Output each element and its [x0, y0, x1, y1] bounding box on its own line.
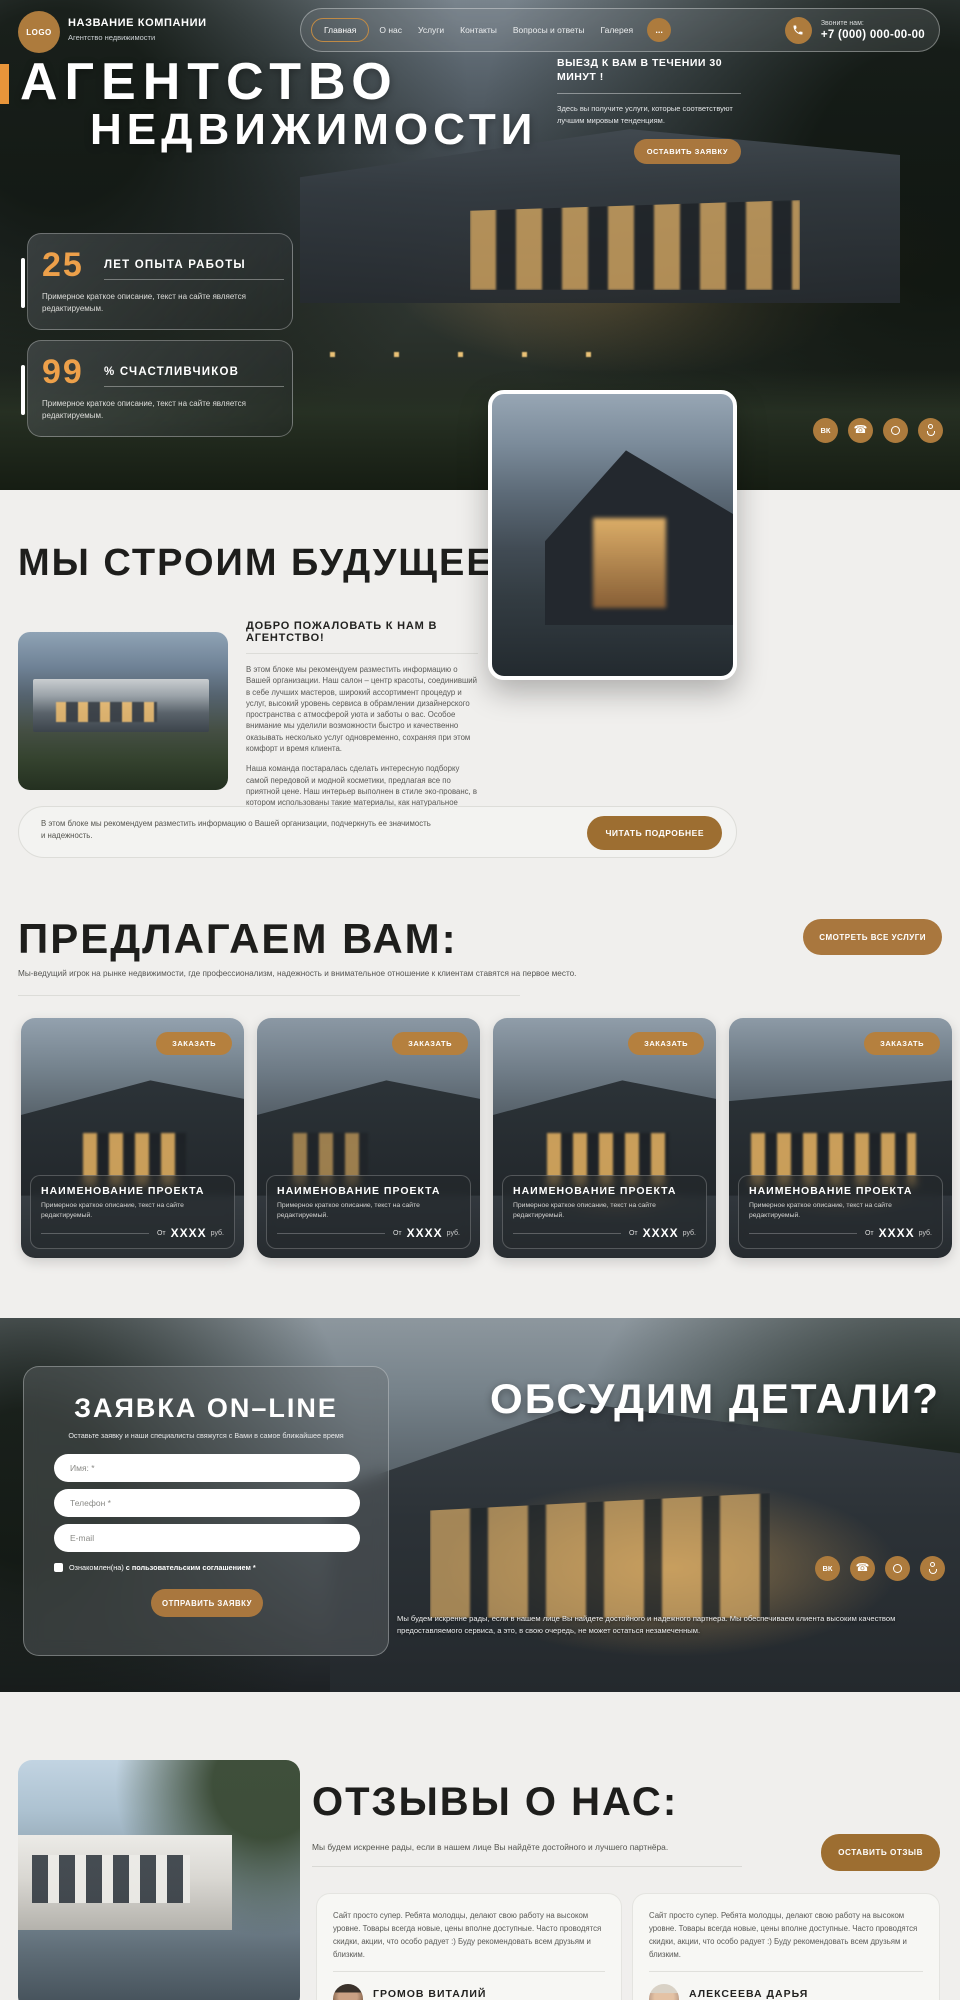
nav-item-about[interactable]: О нас	[371, 19, 410, 41]
about-section: МЫ СТРОИМ БУДУЩЕЕ ДОБРО ПОЖАЛОВАТЬ К НАМ…	[0, 490, 960, 905]
project-text: Примерное краткое описание, текст на сай…	[277, 1201, 427, 1221]
vk-icon[interactable]: ВК	[815, 1556, 840, 1581]
phone-icon[interactable]	[785, 17, 812, 44]
social-links: ВК ☎	[815, 1556, 945, 1581]
stat-label: ЛЕТ ОПЫТА РАБОТЫ	[104, 259, 246, 271]
project-text: Примерное краткое описание, текст на сай…	[749, 1201, 899, 1221]
messenger-icon[interactable]	[885, 1556, 910, 1581]
project-price-row: От XXXX руб.	[277, 1226, 460, 1240]
stat-label: % СЧАСТЛИВЧИКОВ	[104, 366, 239, 378]
project-price-row: От XXXX руб.	[41, 1226, 224, 1240]
price-value: XXXX	[171, 1226, 207, 1240]
project-title: НАИМЕНОВАНИЕ ПРОЕКТА	[41, 1185, 224, 1197]
about-heading: МЫ СТРОИМ БУДУЩЕЕ	[18, 542, 494, 585]
reviewer-avatar	[649, 1984, 679, 2000]
main-nav: Главная О нас Услуги Контакты Вопросы и …	[300, 8, 940, 52]
stat-value: 25	[42, 246, 84, 285]
review-card: Сайт просто супер. Ребята молодцы, делаю…	[632, 1893, 940, 2000]
name-field[interactable]	[54, 1454, 360, 1482]
reviews-subtitle: Мы будем искренне рады, если в нашем лиц…	[312, 1842, 668, 1852]
stat-card-experience: 25 ЛЕТ ОПЫТА РАБОТЫ Примерное краткое оп…	[27, 233, 293, 330]
company-name: НАЗВАНИЕ КОМПАНИИ	[68, 17, 207, 29]
phone-block: Звоните нам: +7 (000) 000-00-00	[785, 17, 925, 44]
services-heading: ПРЕДЛАГАЕМ ВАМ:	[18, 915, 458, 963]
messenger-icon[interactable]	[883, 418, 908, 443]
services-subtitle: Мы-ведущий игрок на рынке недвижимости, …	[18, 969, 598, 978]
nav-item-services[interactable]: Услуги	[410, 19, 452, 41]
price-prefix: От	[865, 1230, 874, 1237]
agreement-link[interactable]: с пользовательским соглашением *	[126, 1563, 256, 1572]
price-value: XXXX	[407, 1226, 443, 1240]
reviewer-avatar	[333, 1984, 363, 2000]
reviewer-name: АЛЕКСЕЕВА ДАРЬЯ	[689, 1988, 808, 2000]
phone-field[interactable]	[54, 1489, 360, 1517]
whatsapp-icon[interactable]: ☎	[848, 418, 873, 443]
hero-photo-windows	[470, 200, 800, 290]
agreement-row: Ознакомлен(на) с пользовательским соглаш…	[54, 1563, 256, 1572]
project-card: ЗАКАЗАТЬ НАИМЕНОВАНИЕ ПРОЕКТА Примерное …	[257, 1018, 480, 1258]
nav-item-contacts[interactable]: Контакты	[452, 19, 505, 41]
stat-divider	[104, 279, 284, 280]
review-divider	[333, 1971, 605, 1972]
stat-value: 99	[42, 353, 84, 392]
hero-section: LOGO НАЗВАНИЕ КОМПАНИИ Агентство недвижи…	[0, 0, 960, 490]
project-text: Примерное краткое описание, текст на сай…	[513, 1201, 663, 1221]
price-value: XXXX	[643, 1226, 679, 1240]
submit-request-button[interactable]: ОТПРАВИТЬ ЗАЯВКУ	[151, 1589, 263, 1617]
review-text: Сайт просто супер. Ребята молодцы, делаю…	[649, 1910, 923, 1961]
hero-title-line2: НЕДВИЖИМОСТИ	[90, 108, 537, 152]
hero-photo-pool-lights	[330, 352, 650, 357]
reviews-photo-house	[18, 1760, 300, 2000]
services-section: ПРЕДЛАГАЕМ ВАМ: СМОТРЕТЬ ВСЕ УСЛУГИ Мы-в…	[0, 905, 960, 1318]
phone-text: Звоните нам: +7 (000) 000-00-00	[821, 20, 925, 41]
about-divider	[246, 653, 478, 654]
project-card: ЗАКАЗАТЬ НАИМЕНОВАНИЕ ПРОЕКТА Примерное …	[729, 1018, 952, 1258]
price-prefix: От	[629, 1230, 638, 1237]
callout-text: В этом блоке мы рекомендуем разместить и…	[41, 818, 431, 843]
social-links: ВК ☎	[813, 418, 943, 443]
project-title: НАИМЕНОВАНИЕ ПРОЕКТА	[277, 1185, 460, 1197]
services-divider	[18, 995, 520, 996]
project-title: НАИМЕНОВАНИЕ ПРОЕКТА	[513, 1185, 696, 1197]
vk-icon[interactable]: ВК	[813, 418, 838, 443]
price-prefix: От	[157, 1230, 166, 1237]
stat-divider	[104, 386, 284, 387]
review-card: Сайт просто супер. Ребята молодцы, делаю…	[316, 1893, 622, 2000]
form-photo-windows	[430, 1493, 770, 1618]
reviewer-name: ГРОМОВ ВИТАЛИЙ	[373, 1988, 486, 2000]
stat-card-clients: 99 % СЧАСТЛИВЧИКОВ Примерное краткое опи…	[27, 340, 293, 437]
project-title: НАИМЕНОВАНИЕ ПРОЕКТА	[749, 1185, 932, 1197]
promo-divider	[557, 93, 741, 94]
project-cards: ЗАКАЗАТЬ НАИМЕНОВАНИЕ ПРОЕКТА Примерное …	[21, 1018, 952, 1258]
agreement-label: Ознакомлен(на) с пользовательским соглаш…	[69, 1563, 256, 1572]
read-more-button[interactable]: ЧИТАТЬ ПОДРОБНЕЕ	[587, 816, 722, 850]
request-section: ОБСУДИМ ДЕТАЛИ? ЗАЯВКА ON–LINE Оставьте …	[0, 1318, 960, 1692]
title-accent-bar	[0, 64, 9, 104]
agreement-checkbox[interactable]	[54, 1563, 63, 1572]
email-field[interactable]	[54, 1524, 360, 1552]
reviewer: АЛЕКСЕЕВА ДАРЬЯ 01.01.2026 г.	[649, 1984, 923, 2000]
order-button[interactable]: ЗАКАЗАТЬ	[392, 1032, 468, 1055]
project-info: НАИМЕНОВАНИЕ ПРОЕКТА Примерное краткое о…	[266, 1175, 471, 1249]
project-card: ЗАКАЗАТЬ НАИМЕНОВАНИЕ ПРОЕКТА Примерное …	[21, 1018, 244, 1258]
nav-item-home[interactable]: Главная	[311, 18, 369, 42]
price-currency: руб.	[919, 1230, 932, 1237]
brand-block: НАЗВАНИЕ КОМПАНИИ Агентство недвижимости	[68, 17, 207, 42]
price-currency: руб.	[211, 1230, 224, 1237]
promo-text: Здесь вы получите услуги, которые соотве…	[557, 103, 741, 126]
nav-item-gallery[interactable]: Галерея	[592, 19, 641, 41]
price-prefix: От	[393, 1230, 402, 1237]
hero-title-line1: АГЕНТСТВО	[20, 56, 399, 108]
reviews-section: ОТЗЫВЫ О НАС: Мы будем искренне рады, ес…	[0, 1692, 960, 2000]
request-form: ЗАЯВКА ON–LINE Оставьте заявку и наши сп…	[23, 1366, 389, 1656]
stat-text: Примерное краткое описание, текст на сай…	[42, 398, 257, 422]
form-subtitle: Оставьте заявку и наши специалисты свяжу…	[52, 1431, 360, 1440]
project-text: Примерное краткое описание, текст на сай…	[41, 1201, 191, 1221]
leave-request-button[interactable]: ОСТАВИТЬ ЗАЯВКУ	[634, 139, 741, 164]
project-info: НАИМЕНОВАНИЕ ПРОЕКТА Примерное краткое о…	[502, 1175, 707, 1249]
stat-text: Примерное краткое описание, текст на сай…	[42, 291, 257, 315]
reviewer: ГРОМОВ ВИТАЛИЙ 01.01.2026 г.	[333, 1984, 605, 2000]
project-price-row: От XXXX руб.	[749, 1226, 932, 1240]
project-price-row: От XXXX руб.	[513, 1226, 696, 1240]
price-value: XXXX	[879, 1226, 915, 1240]
reviews-divider	[312, 1866, 742, 1867]
reviews-heading: ОТЗЫВЫ О НАС:	[312, 1780, 678, 1825]
page: LOGO НАЗВАНИЕ КОМПАНИИ Агентство недвижи…	[0, 0, 960, 2000]
all-services-button[interactable]: СМОТРЕТЬ ВСЕ УСЛУГИ	[803, 919, 942, 955]
about-photo-tall-house	[488, 390, 737, 680]
whatsapp-icon[interactable]: ☎	[850, 1556, 875, 1581]
hero-promo: ВЫЕЗД К ВАМ В ТЕЧЕНИИ 30 МИНУТ ! Здесь в…	[557, 56, 741, 164]
logo[interactable]: LOGO	[18, 11, 60, 53]
about-paragraph-1: В этом блоке мы рекомендуем разместить и…	[246, 664, 478, 754]
order-button[interactable]: ЗАКАЗАТЬ	[156, 1032, 232, 1055]
phone-number[interactable]: +7 (000) 000-00-00	[821, 29, 925, 41]
price-currency: руб.	[683, 1230, 696, 1237]
review-text: Сайт просто супер. Ребята молодцы, делаю…	[333, 1910, 605, 1961]
discuss-heading: ОБСУДИМ ДЕТАЛИ?	[490, 1375, 940, 1423]
about-callout: В этом блоке мы рекомендуем разместить и…	[18, 806, 737, 858]
nav-more-button[interactable]: ...	[647, 18, 671, 42]
order-button[interactable]: ЗАКАЗАТЬ	[864, 1032, 940, 1055]
price-currency: руб.	[447, 1230, 460, 1237]
order-button[interactable]: ЗАКАЗАТЬ	[628, 1032, 704, 1055]
partner-note: Мы будем искренне рады, если в нашем лиц…	[397, 1613, 925, 1637]
project-info: НАИМЕНОВАНИЕ ПРОЕКТА Примерное краткое о…	[30, 1175, 235, 1249]
odnoklassniki-icon[interactable]	[920, 1556, 945, 1581]
company-tagline: Агентство недвижимости	[68, 33, 207, 42]
form-title: ЗАЯВКА ON–LINE	[24, 1393, 388, 1424]
about-subheading: ДОБРО ПОЖАЛОВАТЬ К НАМ В АГЕНТСТВО!	[246, 620, 478, 644]
review-divider	[649, 1971, 923, 1972]
odnoklassniki-icon[interactable]	[918, 418, 943, 443]
promo-title: ВЫЕЗД К ВАМ В ТЕЧЕНИИ 30 МИНУТ !	[557, 56, 741, 84]
about-photo-house	[18, 632, 228, 790]
project-card: ЗАКАЗАТЬ НАИМЕНОВАНИЕ ПРОЕКТА Примерное …	[493, 1018, 716, 1258]
nav-item-faq[interactable]: Вопросы и ответы	[505, 19, 593, 41]
leave-review-button[interactable]: ОСТАВИТЬ ОТЗЫВ	[821, 1834, 940, 1871]
project-info: НАИМЕНОВАНИЕ ПРОЕКТА Примерное краткое о…	[738, 1175, 943, 1249]
call-label: Звоните нам:	[821, 20, 925, 27]
